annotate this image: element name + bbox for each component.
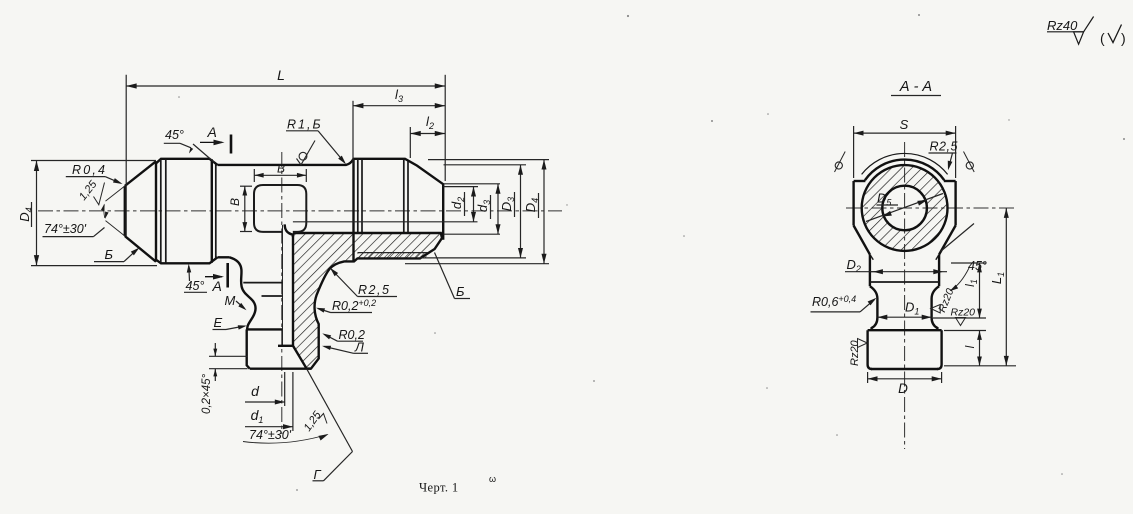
svg-text:В: В bbox=[228, 198, 242, 206]
svg-text:l: l bbox=[963, 345, 977, 348]
svg-text:Л: Л bbox=[354, 340, 364, 355]
svg-text:R2,5: R2,5 bbox=[930, 140, 958, 154]
svg-text:D: D bbox=[898, 381, 908, 396]
svg-text:Г: Г bbox=[314, 467, 322, 482]
svg-text:74°±30': 74°±30' bbox=[249, 428, 292, 442]
svg-text:ω: ω bbox=[489, 474, 496, 484]
svg-text:1,25: 1,25 bbox=[77, 178, 100, 203]
svg-text:d: d bbox=[251, 383, 260, 399]
svg-text:М: М bbox=[225, 293, 236, 308]
svg-text:D3: D3 bbox=[499, 197, 516, 211]
svg-text:74°±30': 74°±30' bbox=[44, 222, 87, 236]
svg-text:(: ( bbox=[1100, 30, 1105, 46]
svg-text:45°: 45° bbox=[165, 128, 184, 142]
svg-text:R1,Б: R1,Б bbox=[287, 118, 323, 132]
svg-text:d3: d3 bbox=[475, 200, 492, 212]
svg-text:): ) bbox=[1121, 30, 1126, 46]
svg-text:d2: d2 bbox=[449, 197, 466, 209]
svg-text:R2,5: R2,5 bbox=[358, 283, 390, 297]
svg-text:1,25: 1,25 bbox=[302, 409, 325, 434]
svg-text:d1: d1 bbox=[251, 407, 264, 425]
svg-text:l1: l1 bbox=[963, 279, 979, 287]
svg-text:S: S bbox=[900, 117, 909, 132]
svg-text:Е: Е bbox=[214, 315, 223, 330]
svg-text:l2: l2 bbox=[426, 114, 434, 131]
svg-text:D4: D4 bbox=[523, 198, 540, 212]
svg-text:R0,2+0,2: R0,2+0,2 bbox=[332, 298, 376, 313]
svg-text:Rz20: Rz20 bbox=[849, 339, 861, 366]
svg-text:45°: 45° bbox=[968, 259, 987, 273]
svg-text:А: А bbox=[207, 124, 217, 140]
svg-text:L1: L1 bbox=[989, 272, 1006, 284]
svg-text:R0,6+0,4: R0,6+0,4 bbox=[812, 294, 856, 309]
svg-text:D1: D1 bbox=[905, 300, 919, 317]
svg-text:45°: 45° bbox=[186, 279, 205, 293]
svg-text:Б: Б bbox=[456, 284, 465, 299]
svg-text:Rz20: Rz20 bbox=[951, 307, 976, 319]
svg-text:А - А: А - А bbox=[899, 79, 932, 95]
svg-text:А: А bbox=[212, 278, 222, 294]
svg-text:Rz40: Rz40 bbox=[1047, 18, 1078, 33]
svg-text:l3: l3 bbox=[395, 87, 403, 104]
svg-text:В: В bbox=[277, 162, 285, 176]
svg-text:0,2×45°: 0,2×45° bbox=[201, 374, 213, 414]
svg-text:L: L bbox=[277, 67, 285, 83]
svg-text:Б: Б bbox=[105, 247, 114, 262]
svg-text:R0,4: R0,4 bbox=[72, 163, 107, 177]
svg-text:Черт. 1: Черт. 1 bbox=[419, 481, 459, 495]
